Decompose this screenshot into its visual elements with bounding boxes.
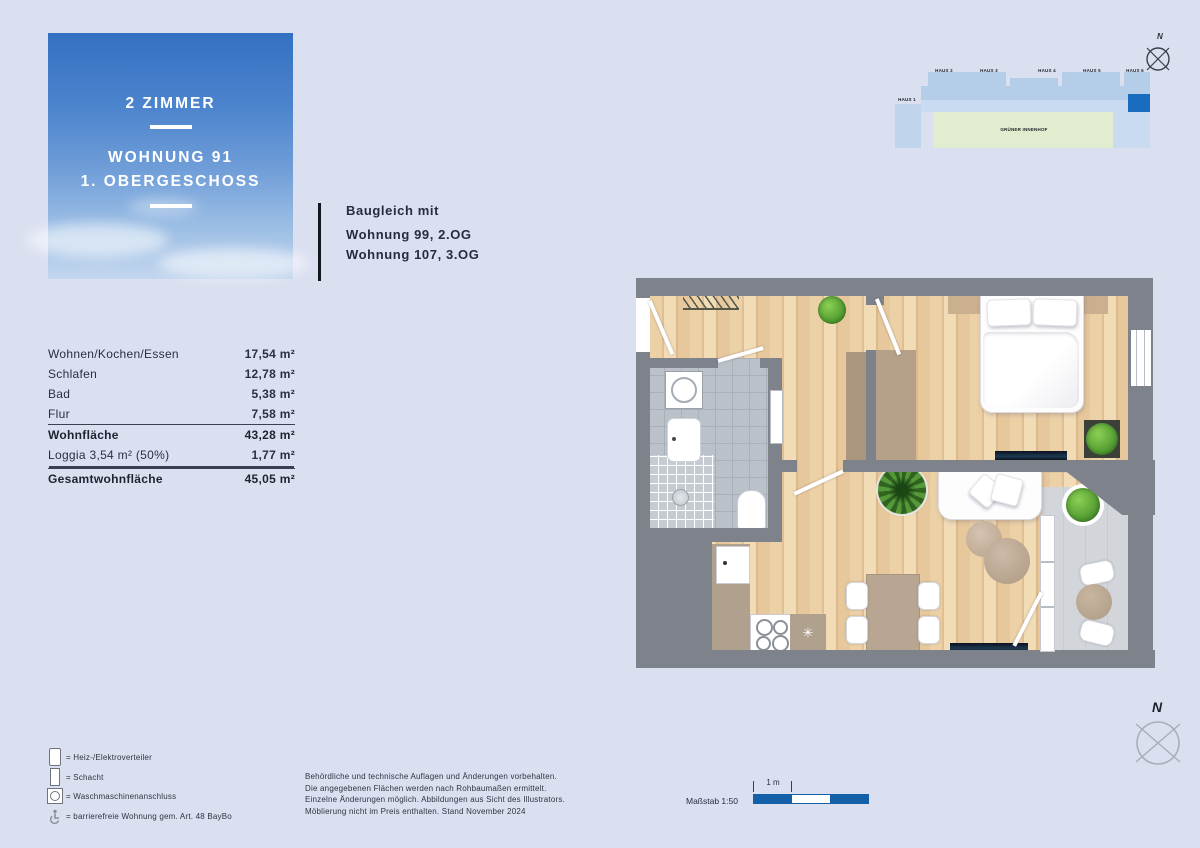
distributor-icon [44,748,66,766]
kitchen-sink [716,546,750,584]
area-label: Bad [48,387,70,401]
wall-top [636,278,1148,296]
cooktop [750,614,792,654]
disclaimer-text: Behördliche und technische Auflagen und … [305,771,565,817]
rooms-count-heading: 2 ZIMMER [48,95,293,113]
site-building-block [1062,72,1120,88]
site-building-inner-band [921,100,1150,112]
chair [846,616,868,644]
toilet [737,490,766,529]
accessible-icon [44,809,66,824]
compass-icon: N [1140,28,1180,76]
entrance-opening [636,298,650,352]
area-table: Wohnen/Kochen/Essen17,54 m²Schlafen12,78… [48,344,295,489]
title-card: 2 ZIMMER WOHNUNG 91 1. OBERGESCHOSS [48,33,293,279]
scale-tick [791,781,792,792]
scale-bar [753,794,869,804]
site-building-right-wing [1112,112,1150,148]
area-value: 5,38 m² [252,387,295,401]
legend-item: = Schacht [44,768,104,786]
washing-machine [665,371,703,409]
chair [918,616,940,644]
double-bed [980,293,1084,413]
wall-left [636,278,650,300]
house-label: HAUS 5 [1078,68,1106,73]
house-label: HAUS 3 [975,68,1003,73]
legend-label: = Schacht [66,773,104,782]
scale-segment [792,795,830,803]
disclaimer-line: Die angegebenen Flächen werden nach Rohb… [305,783,565,795]
area-value: 17,54 m² [245,347,295,361]
area-row: Wohnfläche43,28 m² [48,424,295,445]
baugleich-heading: Baugleich mit [346,203,439,218]
loggia-table [1076,584,1112,620]
window [1131,330,1151,386]
compass-north-label: N [1157,32,1163,41]
wall-bottom [700,650,1155,668]
washing-machine-icon [44,788,66,804]
divider-rule [150,204,192,208]
area-label: Flur [48,407,70,421]
shaft [770,390,783,444]
site-building-haus1 [895,104,921,148]
highlighted-apartment-marker [1128,94,1150,112]
expose-page: 2 ZIMMER WOHNUNG 91 1. OBERGESCHOSS Baug… [0,0,1200,848]
wall-bath-right [768,358,782,542]
floor-heading: 1. OBERGESCHOSS [48,173,293,191]
area-row: Bad5,38 m² [48,384,295,404]
scale-segment [754,795,792,803]
plant [1086,423,1118,455]
house-label: HAUS 1 [893,97,921,102]
area-value: 7,58 m² [252,407,295,421]
bathroom-sink [667,418,701,462]
wall-left [636,352,650,542]
area-row: Schlafen12,78 m² [48,364,295,384]
wall-corner-block [636,528,712,668]
area-value: 45,05 m² [245,472,295,486]
area-label: Schlafen [48,367,97,381]
courtyard-label: GRÜNER INNENHOF [993,127,1055,132]
dining-table [866,574,920,654]
shaft-icon [44,768,66,786]
legend-item: = barrierefreie Wohnung gem. Art. 48 Bay… [44,807,232,825]
plant [818,296,846,324]
wall-bath-bottom [636,528,782,542]
cloud-decoration [28,223,168,257]
disclaimer-line: Einzelne Änderungen möglich. Abbildungen… [305,794,565,806]
hall-closet [846,352,866,472]
apartment-number-heading: WOHNUNG 91 [48,149,293,167]
site-building-block [928,72,1006,88]
area-value: 43,28 m² [245,428,295,442]
kitchen-unit [790,614,826,652]
chair [846,582,868,610]
scale-segment [830,795,868,803]
pouf [984,538,1030,584]
baugleich-item: Wohnung 107, 3.OG [346,247,479,262]
wall-divider [866,350,876,472]
area-value: 1,77 m² [252,448,295,462]
area-row: Gesamtwohnfläche45,05 m² [48,468,295,489]
site-building-block [1010,78,1058,88]
divider-rule [150,125,192,129]
baugleich-item: Wohnung 99, 2.OG [346,227,472,242]
vertical-divider [318,203,321,281]
house-label: HAUS 4 [1033,68,1061,73]
bedside-shelf [1082,296,1108,314]
area-label: Loggia 3,54 m² (50%) [48,448,169,462]
plant-large [878,466,926,514]
scale-unit-label: 1 m [755,778,791,787]
legend-item: = Heiz-/Elektroverteiler [44,748,152,766]
compass-north-label: N [1152,699,1163,715]
legend-label: = barrierefreie Wohnung gem. Art. 48 Bay… [66,812,232,821]
wall-bath [648,358,718,368]
scale-label: Maßstab 1:50 [686,796,738,806]
bedside-shelf [948,296,980,314]
area-row: Wohnen/Kochen/Essen17,54 m² [48,344,295,364]
legend-label: = Waschmaschinenanschluss [66,792,176,801]
loggia-glazing [1040,515,1055,652]
shower-drain [672,489,689,506]
cloud-decoration [158,248,308,278]
house-label: HAUS 2 [930,68,958,73]
compass-icon-large: N [1128,698,1192,778]
disclaimer-line: Möblierung nicht im Preis enthalten. Sta… [305,806,565,818]
bedroom-wardrobe [876,350,916,468]
area-row: Flur7,58 m² [48,404,295,424]
disclaimer-line: Behördliche und technische Auflagen und … [305,771,565,783]
wall-hall [781,460,797,472]
chair [918,582,940,610]
scale-tick [753,781,754,792]
legend-label: = Heiz-/Elektroverteiler [66,753,152,762]
area-label: Wohnen/Kochen/Essen [48,347,179,361]
sofa [938,468,1042,520]
coat-rack [683,294,739,310]
area-label: Wohnfläche [48,428,119,442]
legend-item: = Waschmaschinenanschluss [44,787,176,805]
area-label: Gesamtwohnfläche [48,472,163,486]
tv-sideboard [995,451,1067,460]
area-row: Loggia 3,54 m² (50%)1,77 m² [48,445,295,465]
area-value: 12,78 m² [245,367,295,381]
